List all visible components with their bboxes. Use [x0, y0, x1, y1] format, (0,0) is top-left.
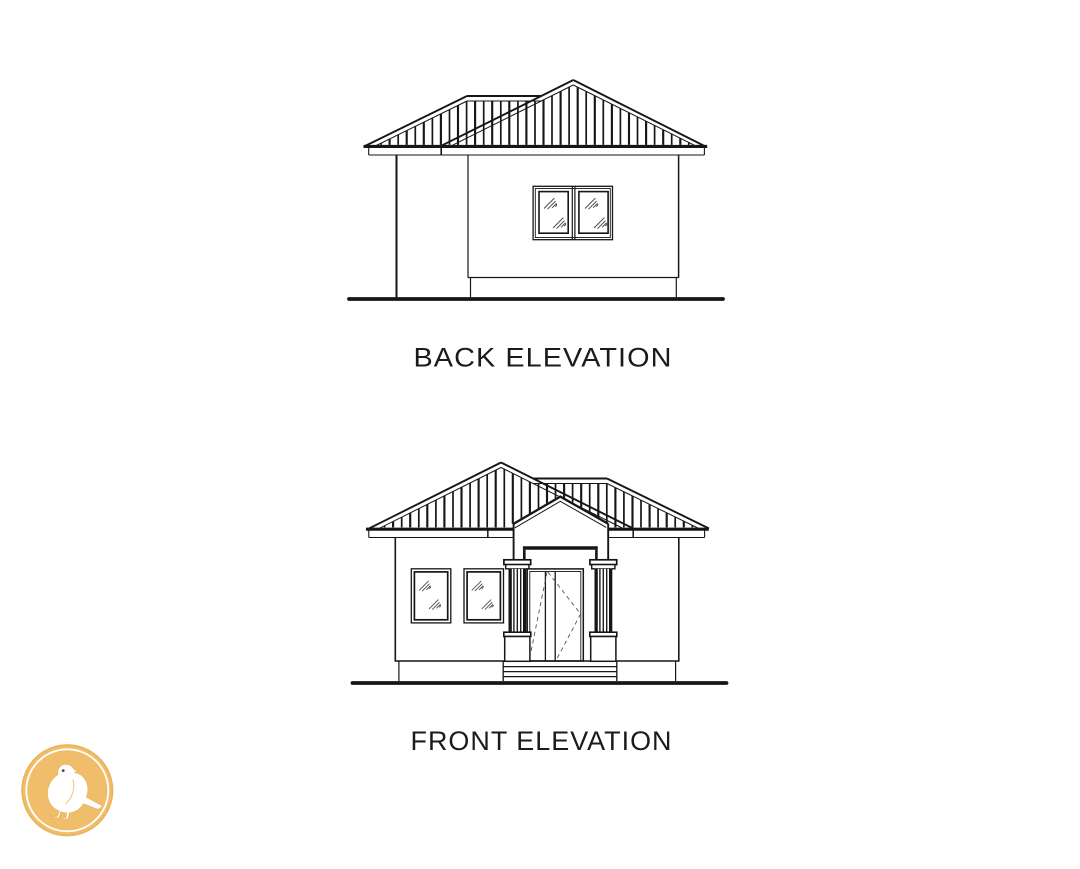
- svg-text:FRONT ELEVATION: FRONT ELEVATION: [411, 726, 673, 756]
- svg-text:BACK ELEVATION: BACK ELEVATION: [414, 342, 673, 372]
